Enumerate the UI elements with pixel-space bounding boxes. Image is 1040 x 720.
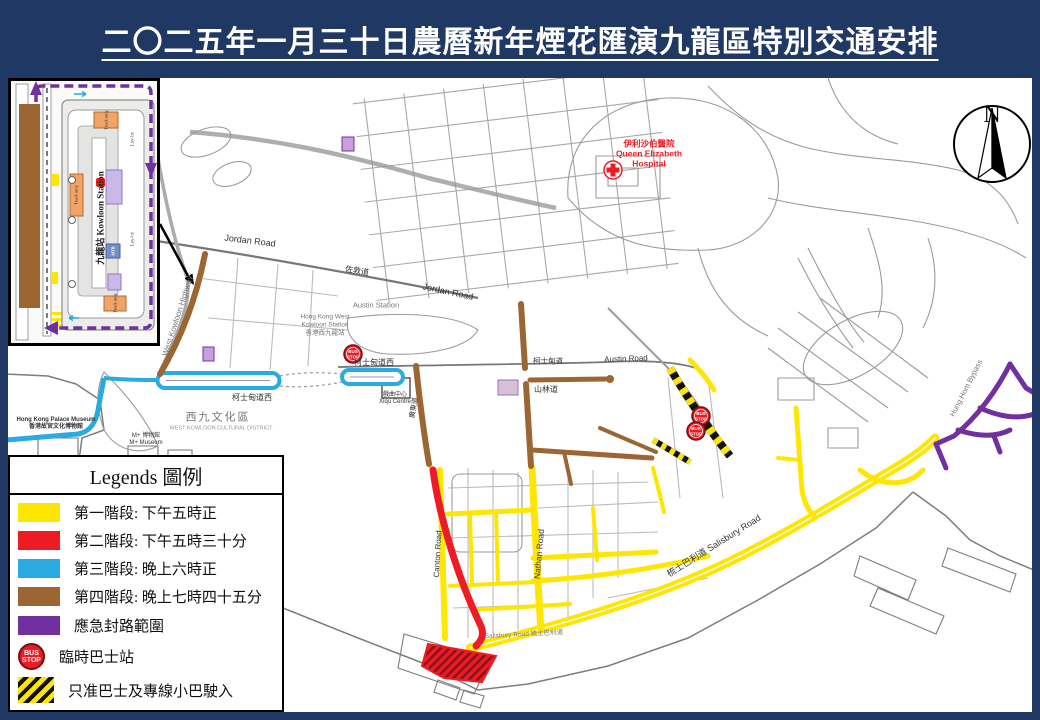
emergency-swatch — [18, 616, 60, 635]
page-title: 二〇二五年一月三十日農曆新年煙花匯演九龍區特別交通安排 — [102, 17, 939, 61]
svg-text:BUS: BUS — [691, 426, 701, 431]
phase4-brown-roads — [160, 254, 656, 484]
inset-canvas — [11, 81, 157, 343]
legend-row-emergency: 應急封路範圍 — [18, 615, 274, 636]
svg-text:STOP: STOP — [690, 432, 702, 437]
traffic-arrangement-notice: { "title": "二〇二五年一月三十日農曆新年煙花匯演九龍區特別交通安排"… — [0, 0, 1040, 720]
legend-label: 應急封路範圍 — [74, 615, 164, 636]
inset-mtr-label: MTR — [111, 246, 116, 255]
legend-label: 第三階段: 晚上六時正 — [74, 558, 217, 579]
phase2-swatch — [18, 531, 60, 550]
bus-stop-icon: BUS STOP — [18, 643, 45, 670]
inset-truck-only-label: Truck only — [74, 185, 79, 205]
phase1-yellow-roads — [428, 360, 935, 648]
bus-stop-text: BUS — [24, 650, 39, 657]
legend-rows: 第一階段: 下午五時正 第二階段: 下午五時三十分 第三階段: 晚上六時正 第四… — [10, 495, 282, 710]
legend-label: 第四階段: 晚上七時四十五分 — [74, 586, 262, 607]
inset-pointer-arrow — [160, 224, 194, 285]
legend-row-bus-only: 只准巴士及專線小巴駛入 — [18, 677, 274, 703]
title-bar: 二〇二五年一月三十日農曆新年煙花匯演九龍區特別交通安排 — [0, 0, 1040, 78]
svg-text:BUS: BUS — [348, 349, 358, 354]
inset-station-label: 九龍站 Kowloon Station — [94, 171, 107, 265]
phase3-blue-roads — [8, 370, 403, 440]
legend-box: Legends 圖例 第一階段: 下午五時正 第二階段: 下午五時三十分 第三階… — [8, 455, 284, 712]
phase1-swatch — [18, 503, 60, 522]
legend-label: 只准巴士及專線小巴駛入 — [68, 680, 233, 701]
map-panel: BUS STOP BUS STOP BUS STOP N — [8, 78, 1032, 712]
legend-row-bus-stop: BUS STOP 臨時巴士站 — [18, 643, 274, 670]
inset-layby-label: Lay-by — [131, 132, 136, 146]
compass-n-label: N — [983, 102, 1000, 128]
star-ferry-bus-terminus — [422, 644, 496, 682]
legend-label: 臨時巴士站 — [59, 646, 134, 667]
phase4-swatch — [18, 587, 60, 606]
svg-text:BUS: BUS — [696, 411, 706, 416]
bus-stop-icon: BUS STOP — [344, 345, 362, 363]
legend-label: 第二階段: 下午五時三十分 — [74, 530, 247, 551]
legend-row-phase2: 第二階段: 下午五時三十分 — [18, 530, 274, 551]
phase3-swatch — [18, 559, 60, 578]
hospital-cross-icon — [604, 161, 622, 179]
bus-stop-icon: BUS STOP — [687, 422, 705, 440]
legend-row-phase4: 第四階段: 晚上七時四十五分 — [18, 586, 274, 607]
legend-row-phase3: 第三階段: 晚上六時正 — [18, 558, 274, 579]
legend-title: Legends 圖例 — [10, 457, 282, 495]
bus-only-swatch — [18, 677, 54, 703]
legend-row-phase1: 第一階段: 下午五時正 — [18, 502, 274, 523]
svg-text:STOP: STOP — [347, 355, 359, 360]
legend-label: 第一階段: 下午五時正 — [74, 502, 217, 523]
inset-truck-only-label: Truck only — [113, 293, 118, 313]
inset-layby-label: Lay-by — [131, 232, 136, 246]
emergency-purple-roads — [936, 364, 1032, 468]
svg-text:STOP: STOP — [695, 417, 707, 422]
kowloon-station-inset: 九龍站 Kowloon Station Truck only Truck onl… — [8, 78, 160, 346]
inset-truck-only-label: Truck only — [104, 110, 109, 130]
bus-stop-text: STOP — [22, 657, 41, 664]
phase2-red-roads — [422, 470, 496, 682]
compass-rose: N — [954, 102, 1030, 182]
